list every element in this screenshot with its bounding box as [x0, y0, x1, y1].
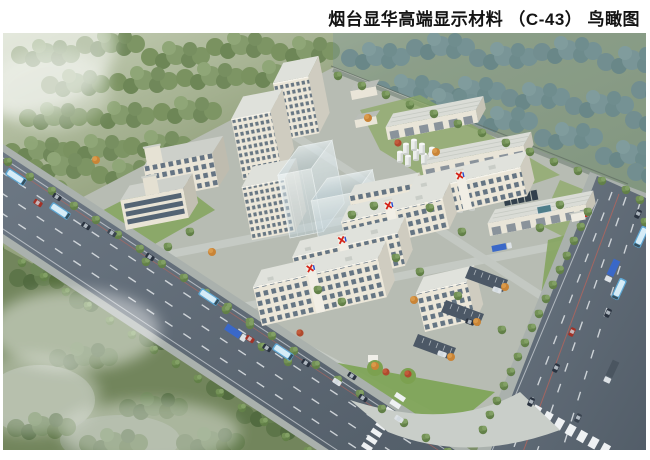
page: 烟台显华高端显示材料 （C-43） 鸟瞰图 — [0, 0, 650, 460]
page-title: 烟台显华高端显示材料 （C-43） 鸟瞰图 — [328, 5, 640, 30]
title-bar: 烟台显华高端显示材料 （C-43） 鸟瞰图 — [0, 0, 650, 33]
aerial-rendering — [3, 33, 646, 450]
